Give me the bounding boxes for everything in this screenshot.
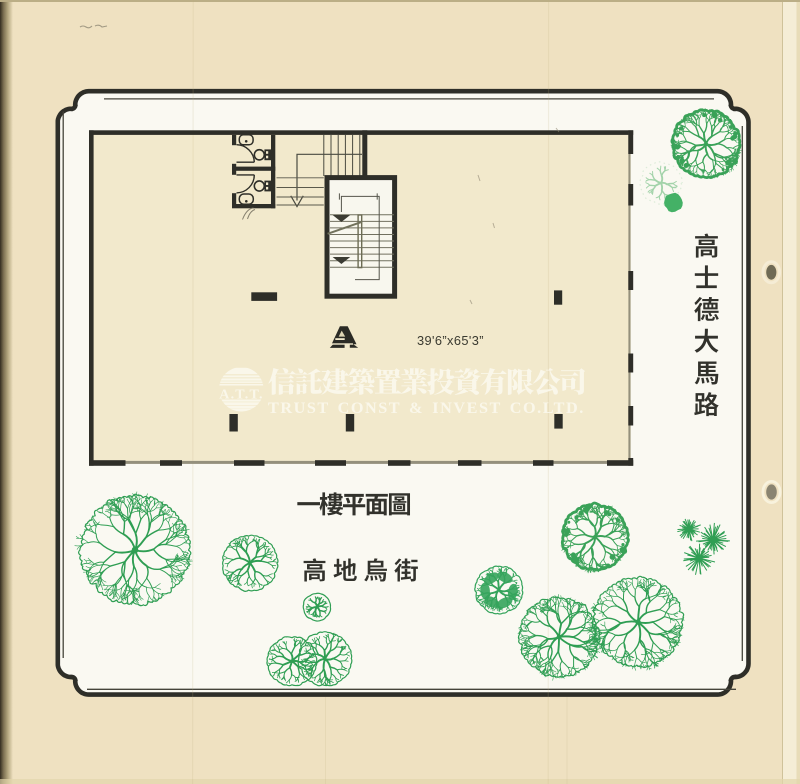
- svg-text:39'6”x65'3”: 39'6”x65'3”: [417, 333, 484, 348]
- svg-text:A.T.T.: A.T.T.: [219, 387, 263, 402]
- svg-text:TRUST CONST & INVEST CO.LTD.: TRUST CONST & INVEST CO.LTD.: [268, 399, 585, 417]
